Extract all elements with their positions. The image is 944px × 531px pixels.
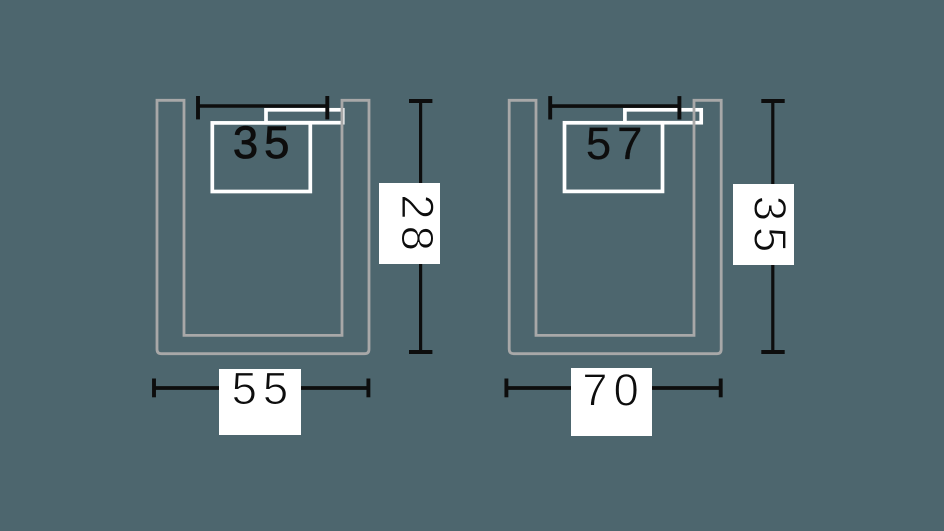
svg-text:57: 57 — [586, 118, 649, 169]
svg-text:28: 28 — [392, 194, 443, 257]
svg-text:55: 55 — [232, 363, 295, 414]
svg-text:35: 35 — [744, 196, 795, 259]
svg-text:35: 35 — [233, 117, 296, 168]
svg-text:70: 70 — [582, 365, 645, 416]
